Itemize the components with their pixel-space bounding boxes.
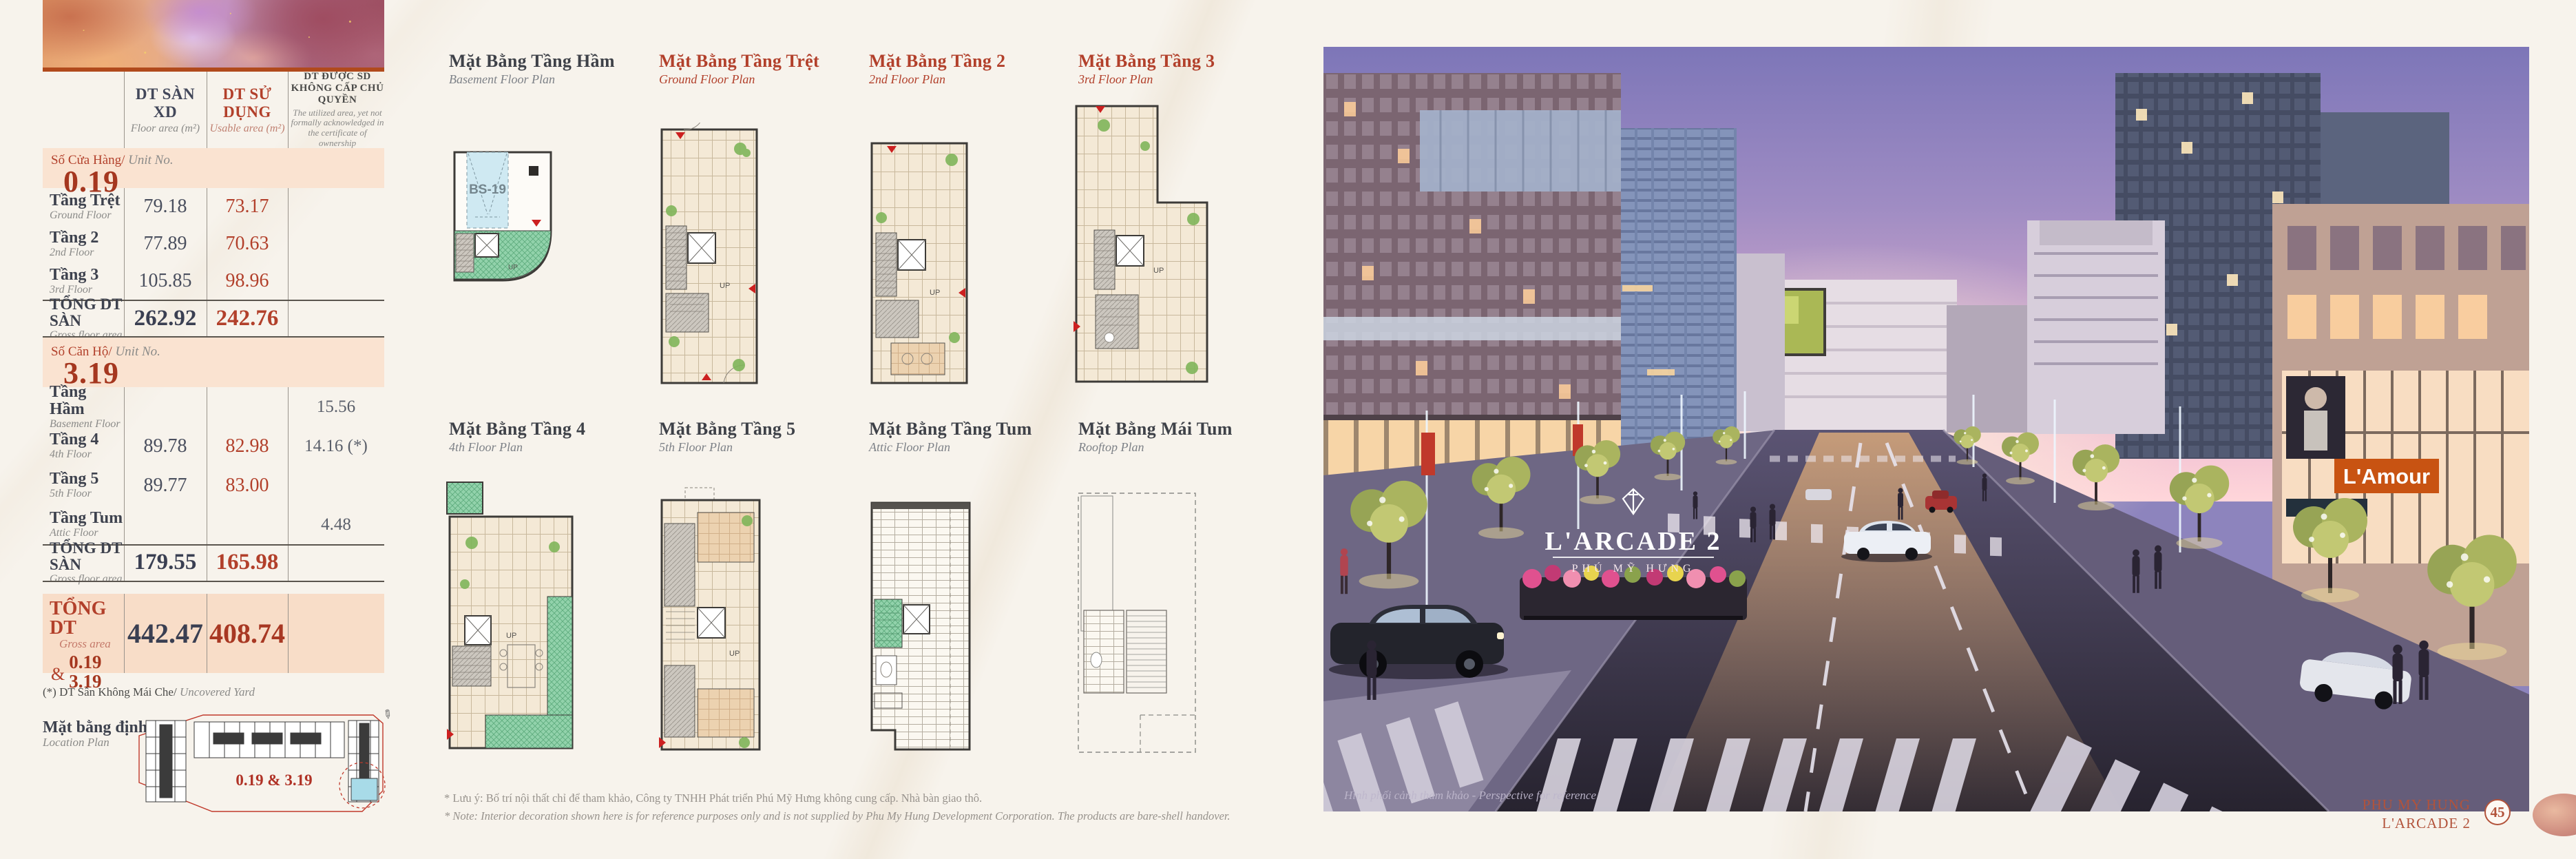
area-table-panel: DT SÀN XD Floor area (m²) DT SỬ DỤNG Usa…: [43, 0, 384, 859]
unit-3-19-band: Số Căn Hộ/ Unit No. 3.19: [43, 338, 384, 387]
fifth-floor-plan: UP: [658, 482, 764, 754]
plan-title-3rd: Mặt Bằng Tầng 33rd Floor Plan: [1078, 51, 1285, 87]
plan-title-attic: Mặt Bằng Tầng TumAttic Floor Plan: [869, 419, 1076, 455]
lamour-sign-text: L'Amour: [2343, 464, 2430, 488]
disclaimer-notes: * Lưu ý: Bố trí nội thất chỉ để tham khả…: [444, 789, 1231, 826]
plan-title-basement: Mặt Bằng Tầng HầmBasement Floor Plan: [449, 51, 656, 87]
basement-floor-plan: BS-19 UP: [448, 148, 565, 286]
table-row: Tầng 33rd Floor 105.85 98.96: [43, 262, 384, 300]
table-rule: [43, 581, 384, 582]
plan-title-5th: Mặt Bằng Tầng 55th Floor Plan: [659, 419, 866, 455]
ground-floor-plan: UP: [658, 123, 761, 388]
subtotal-row: TỔNG DT SÀNGross floor area 262.92 242.7…: [43, 301, 384, 336]
brand-footer: PHU MY HUNG L'ARCADE 2: [2363, 796, 2471, 834]
left-buildings: [1323, 73, 1785, 479]
plan-title-4th: Mặt Bằng Tầng 44th Floor Plan: [449, 419, 656, 455]
table-row: Tầng TumAttic Floor 4.48: [43, 505, 384, 544]
footnote: (*) DT Sân Không Mái Che/ Uncovered Yard: [43, 685, 255, 699]
larcade-sign-sub: PHÚ MỸ HƯNG: [1572, 561, 1695, 575]
plan-title-ground: Mặt Bằng Tầng TrệtGround Floor Plan: [659, 51, 866, 87]
col-header-extra-area: DT ĐƯỢC SD KHÔNG CẤP CHỦ QUYỀN The utili…: [291, 72, 384, 148]
watercolor-header-image: [43, 0, 384, 68]
svg-text:UP: UP: [930, 289, 940, 297]
location-plan-graphic: 0.19 & 3.19 ✎: [117, 707, 392, 831]
svg-text:UP: UP: [1153, 267, 1164, 275]
svg-text:UP: UP: [506, 632, 516, 640]
table-row: Tầng 44th Floor 89.78 82.98 14.16 (*): [43, 426, 384, 466]
second-floor-plan: UP: [868, 136, 971, 388]
basement-unit-label: BS-19: [469, 183, 506, 197]
rendering-caption: Hình phối cảnh tham khảo - Perspective f…: [1343, 789, 1596, 802]
highlighted-unit: [351, 778, 377, 800]
table-row: Tầng 55th Floor 89.77 83.00: [43, 466, 384, 505]
svg-text:UP: UP: [729, 650, 740, 658]
rooftop-plan: [1073, 488, 1200, 756]
page-number: 45: [2484, 799, 2511, 825]
perspective-rendering: L'Amour: [1323, 47, 2529, 811]
pencil-icon: ✎: [379, 707, 392, 723]
table-row: Tầng HầmBasement Floor 15.56: [43, 387, 384, 426]
location-unit-label: 0.19 & 3.19: [235, 772, 312, 789]
subtotal-row: TỔNG DT SÀNGross floor area 179.55 165.9…: [43, 546, 384, 579]
corner-watercolor-blob: [2533, 794, 2576, 836]
table-row: Tầng TrệtGround Floor 79.18 73.17: [43, 188, 384, 225]
building-outline: [146, 721, 379, 802]
svg-text:UP: UP: [508, 264, 518, 271]
attic-floor-plan: [868, 482, 974, 754]
banner-flag: [1421, 433, 1435, 475]
table-header: DT SÀN XD Floor area (m²) DT SỬ DỤNG Usa…: [43, 72, 384, 148]
col-header-usable-area: DT SỬ DỤNG Usable area (m²): [207, 72, 288, 148]
fourth-floor-plan: UP: [444, 481, 578, 753]
grand-total-block: TỔNG DT Gross area & 0.193.19 442.47 408…: [43, 594, 384, 673]
third-floor-plan: UP: [1071, 101, 1212, 386]
car-distant: [1805, 489, 1832, 500]
plan-title-2nd: Mặt Bằng Tầng 22nd Floor Plan: [869, 51, 1076, 87]
col-header-floor-area: DT SÀN XD Floor area (m²): [124, 72, 207, 148]
unit-0-19-band: Số Cửa Hàng/ Unit No. 0.19: [43, 148, 384, 188]
plan-title-rooftop: Mặt Bằng Mái TumRooftop Plan: [1078, 419, 1285, 455]
larcade-sign-name: L'ARCADE 2: [1545, 527, 1722, 556]
svg-text:UP: UP: [720, 282, 730, 290]
table-row: Tầng 22nd Floor 77.89 70.63: [43, 225, 384, 262]
brochure-page: DT SÀN XD Floor area (m²) DT SỬ DỤNG Usa…: [0, 0, 2576, 859]
